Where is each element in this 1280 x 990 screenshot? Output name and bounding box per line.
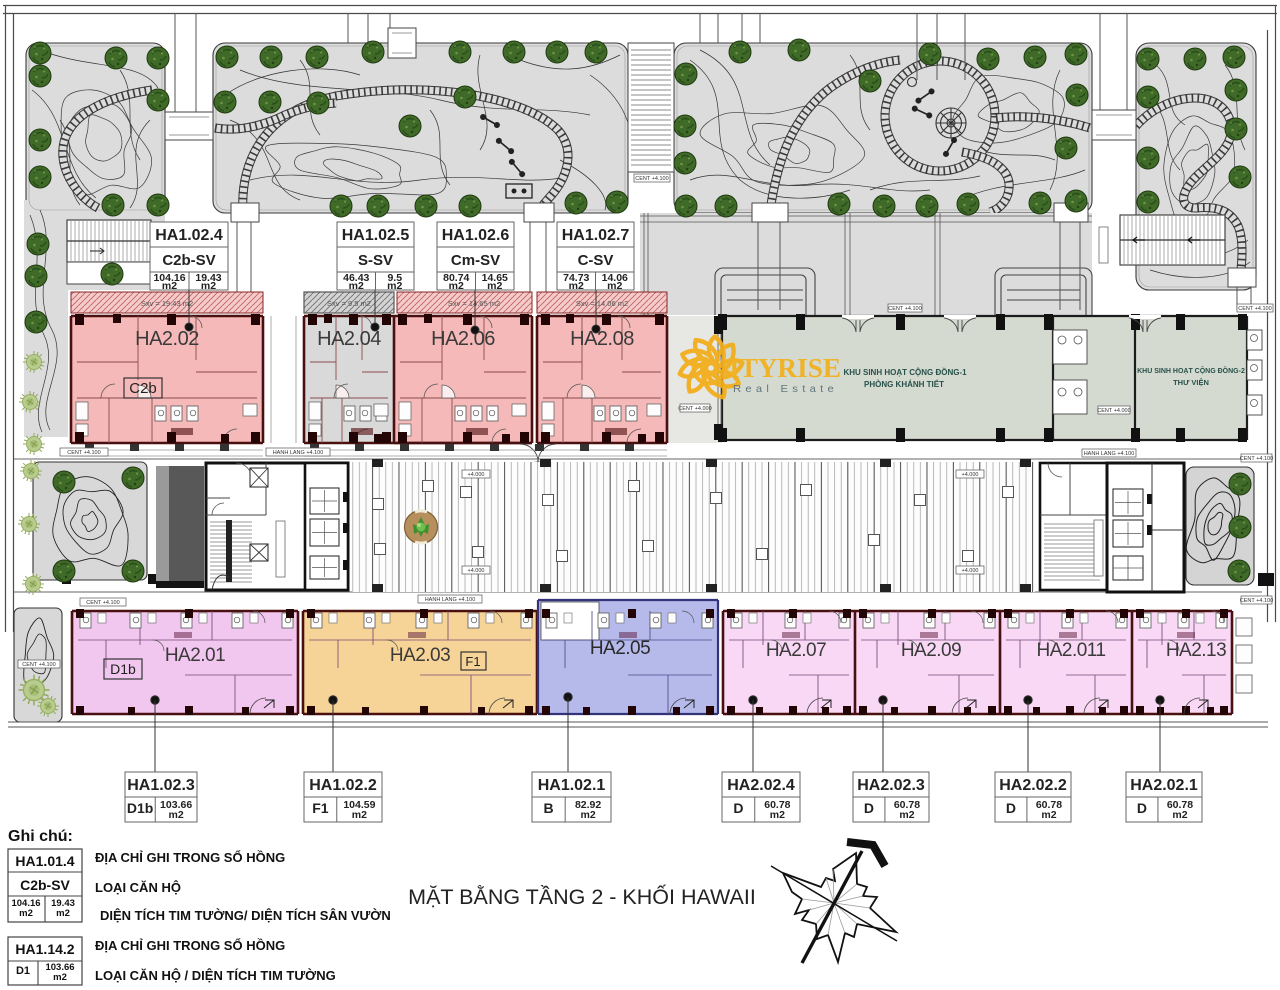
svg-text:C2b-SV: C2b-SV [20, 877, 70, 893]
svg-text:HANH LANG +4.100: HANH LANG +4.100 [1084, 451, 1135, 457]
svg-text:Sxv = 19.43 m2: Sxv = 19.43 m2 [141, 299, 193, 308]
svg-text:HA2.02.2: HA2.02.2 [999, 777, 1067, 794]
svg-text:HA2.08: HA2.08 [570, 328, 634, 350]
svg-text:HA2.04: HA2.04 [317, 328, 381, 350]
svg-text:Sxv = 9.5 m2: Sxv = 9.5 m2 [327, 299, 371, 308]
svg-text:D: D [733, 800, 743, 816]
svg-text:m2: m2 [770, 809, 785, 821]
svg-text:+4.000: +4.000 [962, 568, 979, 574]
svg-text:+4.000: +4.000 [962, 472, 979, 478]
svg-text:THƯ VIỆN: THƯ VIỆN [1173, 378, 1209, 387]
svg-text:m2: m2 [19, 908, 33, 919]
svg-text:m2: m2 [387, 280, 402, 292]
svg-text:m2: m2 [169, 809, 184, 821]
svg-text:m2: m2 [1172, 809, 1187, 821]
svg-text:HA2.13: HA2.13 [1166, 640, 1226, 661]
svg-text:HA2.07: HA2.07 [766, 640, 826, 661]
svg-text:m2: m2 [607, 280, 622, 292]
svg-text:MẶT BẰNG TẦNG 2 - KHỐI HAWAII: MẶT BẰNG TẦNG 2 - KHỐI HAWAII [408, 883, 756, 909]
svg-text:HA2.011: HA2.011 [1036, 640, 1105, 661]
svg-text:C-SV: C-SV [578, 252, 614, 269]
svg-text:m2: m2 [162, 280, 177, 292]
svg-text:Sxv = 14.06 m2: Sxv = 14.06 m2 [576, 299, 628, 308]
svg-text:D1b: D1b [110, 661, 136, 677]
svg-text:Ghi chú:: Ghi chú: [8, 828, 73, 845]
svg-text:ĐỊA CHỈ GHI TRONG SỔ HỒNG: ĐỊA CHỈ GHI TRONG SỔ HỒNG [95, 938, 285, 953]
svg-text:m2: m2 [352, 809, 367, 821]
svg-text:+4.000: +4.000 [468, 472, 485, 478]
svg-text:PHÒNG KHÁNH TIẾT: PHÒNG KHÁNH TIẾT [864, 379, 944, 389]
svg-text:CENT +4.100: CENT +4.100 [1238, 306, 1271, 312]
svg-text:HA1.02.1: HA1.02.1 [538, 777, 606, 794]
svg-text:HANH LANG +4.100: HANH LANG +4.100 [273, 450, 324, 456]
svg-text:D: D [864, 800, 874, 816]
svg-text:HA2.06: HA2.06 [431, 328, 495, 350]
svg-text:LOẠI CĂN HỘ: LOẠI CĂN HỘ [95, 880, 181, 895]
svg-text:Real Estate: Real Estate [733, 383, 838, 395]
svg-text:m2: m2 [349, 280, 364, 292]
svg-text:CENT +4.100: CENT +4.100 [1240, 456, 1273, 462]
svg-text:+4.000: +4.000 [468, 568, 485, 574]
svg-text:HA1.01.4: HA1.01.4 [15, 853, 74, 869]
svg-text:CENT +4.000: CENT +4.000 [1097, 408, 1130, 414]
svg-text:HA1.02.5: HA1.02.5 [342, 227, 410, 244]
svg-text:HA1.02.4: HA1.02.4 [155, 227, 223, 244]
svg-text:HA2.01: HA2.01 [165, 645, 225, 666]
svg-text:m2: m2 [201, 280, 216, 292]
svg-text:CENT +4.100: CENT +4.100 [1240, 598, 1273, 604]
svg-text:ĐỊA CHỈ GHI TRONG SỔ HỒNG: ĐỊA CHỈ GHI TRONG SỔ HỒNG [95, 850, 285, 865]
svg-text:HA2.02.3: HA2.02.3 [857, 777, 925, 794]
svg-text:HA2.02.4: HA2.02.4 [727, 777, 795, 794]
svg-text:F1: F1 [465, 654, 480, 669]
svg-text:m2: m2 [449, 280, 464, 292]
svg-text:LOẠI CĂN HỘ / DIỆN TÍCH TIM TƯ: LOẠI CĂN HỘ / DIỆN TÍCH TIM TƯỜNG [95, 968, 336, 983]
svg-text:HANH LANG +4.100: HANH LANG +4.100 [425, 597, 476, 603]
svg-text:HA1.02.3: HA1.02.3 [127, 777, 195, 794]
svg-text:C2b: C2b [129, 380, 157, 397]
svg-text:HA1.14.2: HA1.14.2 [15, 941, 74, 957]
svg-text:CENT +4.100: CENT +4.100 [86, 600, 119, 606]
svg-text:DIỆN TÍCH TIM TƯỜNG/ DIỆN TÍCH: DIỆN TÍCH TIM TƯỜNG/ DIỆN TÍCH SÂN VƯỜN [100, 908, 391, 923]
svg-text:m2: m2 [1041, 809, 1056, 821]
svg-text:HA2.03: HA2.03 [390, 645, 450, 666]
svg-text:m2: m2 [53, 972, 67, 983]
svg-text:CENT +4.100: CENT +4.100 [22, 662, 55, 668]
svg-text:C2b-SV: C2b-SV [162, 252, 215, 269]
svg-text:m2: m2 [580, 809, 595, 821]
svg-text:CENT +4.000: CENT +4.000 [678, 406, 711, 412]
svg-text:CENT +4.100: CENT +4.100 [888, 306, 921, 312]
svg-text:KHU SINH HOẠT CỘNG ĐỒNG-1: KHU SINH HOẠT CỘNG ĐỒNG-1 [843, 367, 967, 377]
svg-text:D1: D1 [16, 965, 30, 977]
svg-text:Sxv = 14.65 m2: Sxv = 14.65 m2 [448, 299, 500, 308]
svg-text:m2: m2 [56, 908, 70, 919]
svg-text:HA2.09: HA2.09 [901, 640, 961, 661]
svg-text:HA2.05: HA2.05 [590, 638, 650, 659]
svg-text:HA1.02.2: HA1.02.2 [309, 777, 377, 794]
svg-text:Cm-SV: Cm-SV [451, 252, 500, 269]
svg-text:ITYRISE: ITYRISE [729, 353, 841, 383]
svg-text:S-SV: S-SV [358, 252, 393, 269]
svg-text:D: D [1006, 800, 1016, 816]
svg-text:D1b: D1b [127, 800, 153, 816]
svg-text:HA1.02.6: HA1.02.6 [442, 227, 510, 244]
svg-text:HA2.02.1: HA2.02.1 [1130, 777, 1198, 794]
svg-text:m2: m2 [487, 280, 502, 292]
svg-text:B: B [544, 800, 554, 816]
svg-text:HA1.02.7: HA1.02.7 [562, 227, 630, 244]
svg-text:m2: m2 [569, 280, 584, 292]
svg-text:CENT +4.100: CENT +4.100 [67, 450, 100, 456]
svg-text:F1: F1 [312, 800, 329, 816]
svg-text:m2: m2 [899, 809, 914, 821]
svg-text:CENT +4.100: CENT +4.100 [635, 176, 668, 182]
svg-text:D: D [1137, 800, 1147, 816]
